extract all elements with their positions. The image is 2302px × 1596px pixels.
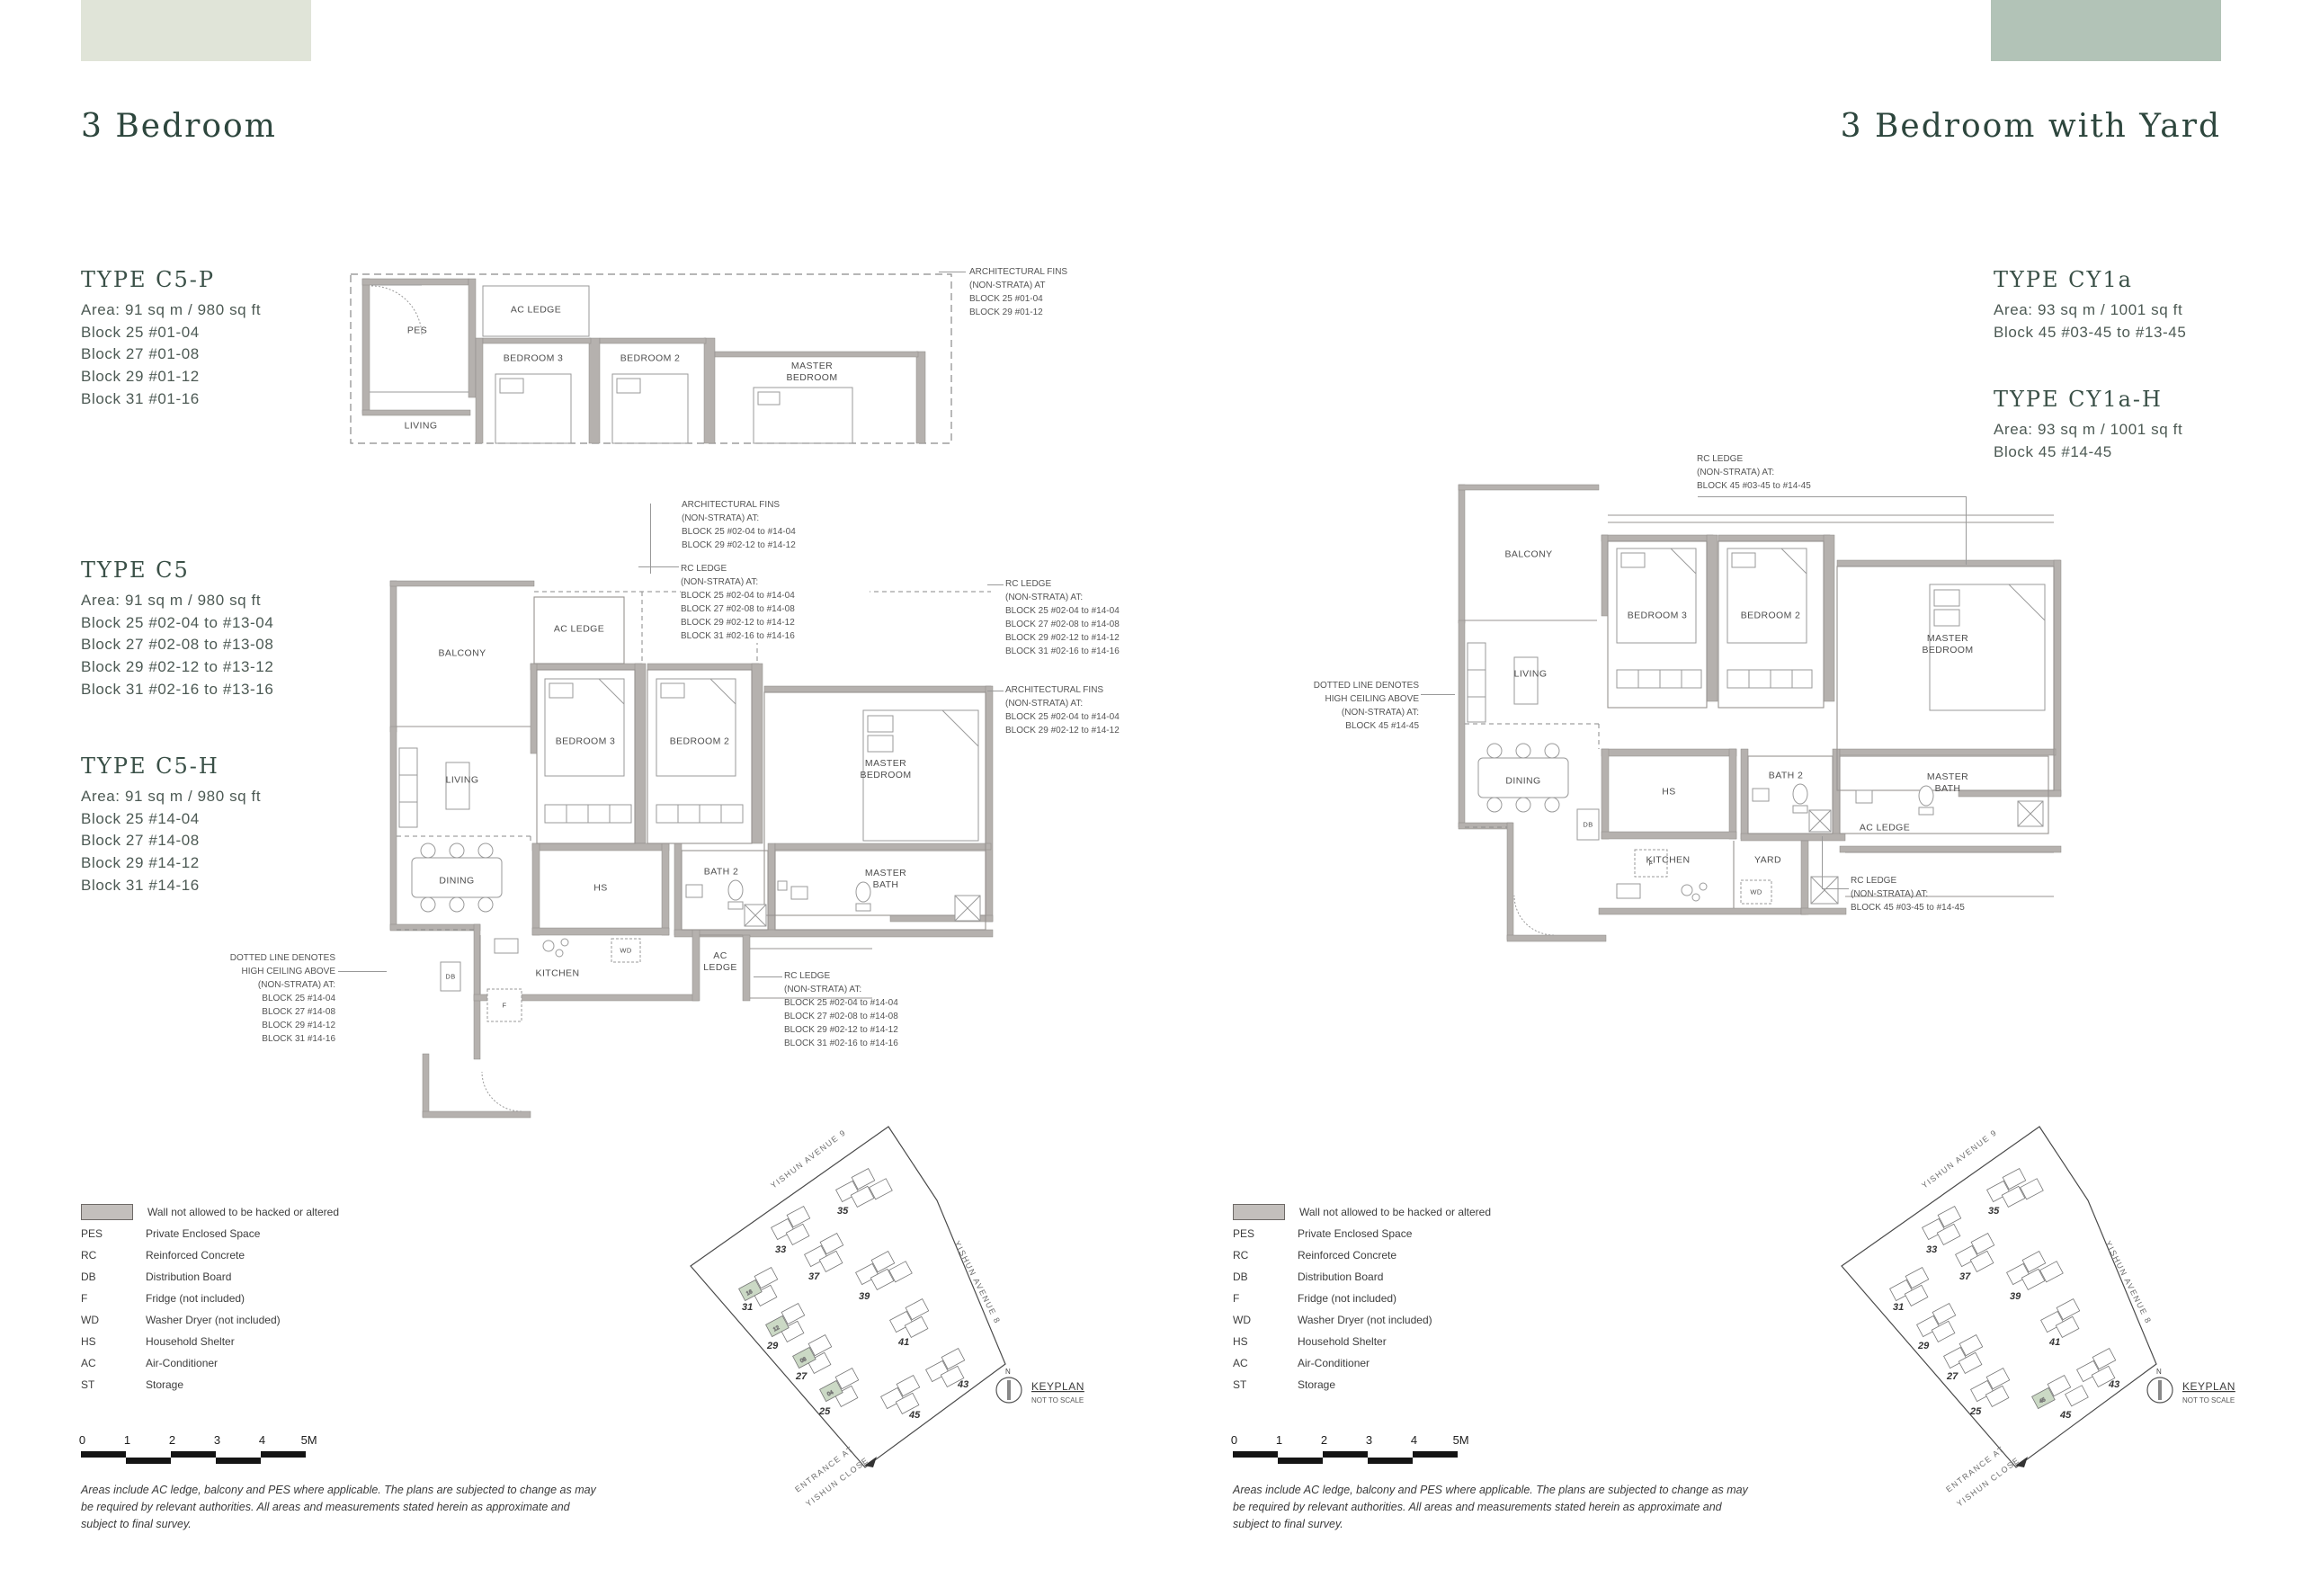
legend-label: Fridge (not included)	[1298, 1292, 1396, 1305]
type-block-cy1ah: TYPE CY1a-H Area: 93 sq m / 1001 sq ft B…	[1994, 387, 2182, 463]
room-label-living: LIVING	[1514, 668, 1548, 680]
building-clusters: 45	[1888, 1164, 2123, 1421]
building-clusters: 16 12 08 04	[737, 1164, 972, 1419]
note-fins-right-c5: ARCHITECTURAL FINS (NON-STRATA) AT: BLOC…	[1005, 683, 1185, 737]
block-label: 39	[859, 1291, 870, 1302]
legend-label: Air-Conditioner	[1298, 1357, 1370, 1369]
block-label: 45	[908, 1410, 921, 1421]
block-label: 39	[2010, 1291, 2021, 1302]
room-label-f: F	[503, 1001, 507, 1009]
legend-abbr: DB	[1233, 1271, 1298, 1283]
legend-row: PESPrivate Enclosed Space	[1233, 1223, 1736, 1244]
keyplan-subtitle: NOT TO SCALE	[1031, 1396, 1084, 1404]
entrance-label: ENTRANCE AT YISHUN CLOSE	[1944, 1444, 2028, 1508]
room-label-dining: DINING	[439, 875, 474, 887]
legend-abbr: WD	[81, 1314, 146, 1326]
leader-line	[939, 272, 966, 272]
north-indicator: N	[996, 1368, 1022, 1403]
note-rc-ledge-bottom-cy1a: RC LEDGE (NON-STRATA) AT: BLOCK 45 #03-4…	[1851, 874, 2039, 914]
legend-row: HSHousehold Shelter	[81, 1331, 584, 1352]
room-label-yard: YARD	[1754, 854, 1781, 866]
leader-line	[638, 566, 679, 567]
legend-row: WDWasher Dryer (not included)	[1233, 1309, 1736, 1331]
scale-tick: 5M	[301, 1433, 317, 1447]
legend-row-wall: Wall not allowed to be hacked or altered	[81, 1201, 584, 1223]
block-label: 27	[795, 1371, 807, 1382]
scale-segment	[1278, 1458, 1323, 1464]
street-label: YISHUN AVENUE 9	[1920, 1128, 1999, 1190]
scale-segment	[1323, 1451, 1368, 1458]
block-label: 29	[766, 1341, 779, 1351]
legend-row: FFridge (not included)	[1233, 1288, 1736, 1309]
street-label: YISHUN AVENUE 8	[952, 1239, 1002, 1325]
room-label-bath2: BATH 2	[704, 866, 738, 878]
block-labels: 35 33 37 39 31 29 41 27 25 43 45	[742, 1206, 968, 1421]
room-label-f: F	[1649, 859, 1654, 867]
note-high-ceiling-cy1a: DOTTED LINE DENOTES HIGH CEILING ABOVE (…	[1253, 679, 1419, 733]
type-block-line: Block 31 #14-16	[81, 875, 261, 897]
type-block-line: Block 25 #01-04	[81, 322, 261, 344]
scale-segment	[1233, 1451, 1278, 1458]
legend-abbr: F	[81, 1292, 146, 1305]
room-label-bedroom2: BEDROOM 2	[1741, 610, 1801, 621]
legend-abbr: HS	[81, 1335, 146, 1348]
block-label: 43	[2108, 1379, 2119, 1390]
block-label: 35	[837, 1206, 849, 1217]
legend-row: ACAir-Conditioner	[1233, 1352, 1736, 1374]
note-rc-ledge-top-cy1a: RC LEDGE (NON-STRATA) AT: BLOCK 45 #03-4…	[1697, 452, 1895, 493]
scale-tick: 0	[1231, 1433, 1237, 1447]
page-title-left: 3 Bedroom	[81, 108, 277, 145]
wall-swatch	[1233, 1204, 1285, 1220]
note-rc-ledge-top-c5: RC LEDGE (NON-STRATA) AT: BLOCK 25 #02-0…	[681, 562, 870, 643]
leader-line	[987, 691, 1004, 691]
block-label: 25	[1969, 1406, 1982, 1417]
leader-line	[1421, 694, 1455, 695]
type-block-line: Block 25 #14-04	[81, 808, 261, 831]
type-block-c5p: TYPE C5-P Area: 91 sq m / 980 sq ft Bloc…	[81, 267, 261, 410]
keyplan-right: YISHUN AVENUE 9 YISHUN AVENUE 8 45 35 33…	[1839, 1115, 2262, 1524]
legend-row: PESPrivate Enclosed Space	[81, 1223, 584, 1244]
block-label: 27	[1946, 1371, 1958, 1382]
room-label-ac-ledge-top: AC LEDGE	[554, 623, 604, 635]
entrance-label: ENTRANCE AT YISHUN CLOSE	[793, 1444, 877, 1508]
legend-abbr: WD	[1233, 1314, 1298, 1326]
room-label-master-bedroom: MASTER BEDROOM	[786, 361, 837, 384]
type-area: Area: 93 sq m / 1001 sq ft	[1994, 299, 2186, 322]
legend-label: Private Enclosed Space	[1298, 1227, 1412, 1240]
floorplan-cy1a-drawing	[1455, 454, 2075, 1003]
legend-row: ACAir-Conditioner	[81, 1352, 584, 1374]
legend-label: Storage	[146, 1378, 183, 1391]
legend-row: FFridge (not included)	[81, 1288, 584, 1309]
type-block-line: Block 29 #14-12	[81, 852, 261, 875]
legend-label: Distribution Board	[1298, 1271, 1383, 1283]
legend-row-wall: Wall not allowed to be hacked or altered	[1233, 1201, 1736, 1223]
north-label: N	[2156, 1368, 2162, 1376]
type-name: TYPE C5	[81, 557, 273, 583]
type-block-line: Block 27 #14-08	[81, 830, 261, 852]
room-label-hs: HS	[593, 882, 607, 894]
block-label: 45	[2059, 1410, 2072, 1421]
leader-line	[338, 971, 387, 972]
type-name: TYPE CY1a-H	[1994, 387, 2182, 412]
scale-tick: 3	[214, 1433, 220, 1447]
legend-row: STStorage	[81, 1374, 584, 1395]
leader-line	[754, 976, 782, 977]
legend-label: Wall not allowed to be hacked or altered	[1299, 1206, 1491, 1218]
scale-tick: 3	[1366, 1433, 1372, 1447]
scale-segment	[1368, 1458, 1413, 1464]
type-block-c5: TYPE C5 Area: 91 sq m / 980 sq ft Block …	[81, 557, 273, 700]
note-high-ceiling-c5: DOTTED LINE DENOTES HIGH CEILING ABOVE (…	[160, 951, 335, 1046]
block-label: 35	[1988, 1206, 2000, 1217]
type-area: Area: 91 sq m / 980 sq ft	[81, 786, 261, 808]
block-label: 29	[1917, 1341, 1930, 1351]
type-block-line: Block 31 #02-16 to #13-16	[81, 679, 273, 701]
block-label: 41	[2048, 1337, 2060, 1348]
site-boundary	[1842, 1127, 2156, 1467]
disclaimer-left: Areas include AC ledge, balcony and PES …	[81, 1482, 607, 1532]
legend-label: Household Shelter	[1298, 1335, 1387, 1348]
legend-label: Reinforced Concrete	[146, 1249, 245, 1262]
street-label: YISHUN AVENUE 9	[769, 1128, 848, 1190]
room-label-balcony: BALCONY	[439, 647, 486, 659]
room-label-kitchen: KITCHEN	[536, 967, 580, 979]
site-boundary	[691, 1127, 1005, 1467]
type-block-c5h: TYPE C5-H Area: 91 sq m / 980 sq ft Bloc…	[81, 753, 261, 896]
legend-row: DBDistribution Board	[1233, 1266, 1736, 1288]
type-block-line: Block 25 #02-04 to #13-04	[81, 612, 273, 635]
note-rc-ledge-right-c5: RC LEDGE (NON-STRATA) AT: BLOCK 25 #02-0…	[1005, 577, 1185, 658]
type-area: Area: 91 sq m / 980 sq ft	[81, 299, 261, 322]
block-label: 33	[1926, 1244, 1937, 1255]
floorplan-cy1a: BALCONY BEDROOM 3 BEDROOM 2 MASTER BEDRO…	[1455, 454, 2075, 1003]
keyplan-subtitle: NOT TO SCALE	[2182, 1396, 2235, 1404]
legend-abbr: AC	[1233, 1357, 1298, 1369]
legend-abbr: HS	[1233, 1335, 1298, 1348]
leader-line	[1966, 496, 1967, 565]
deco-rect-right	[1991, 0, 2221, 61]
leader-line	[1822, 888, 1849, 889]
scale-tick: 1	[1276, 1433, 1282, 1447]
type-block-line: Block 27 #02-08 to #13-08	[81, 634, 273, 656]
legend-label: Storage	[1298, 1378, 1335, 1391]
legend-label: Wall not allowed to be hacked or altered	[147, 1206, 339, 1218]
type-block-line: Block 27 #01-08	[81, 343, 261, 366]
room-label-bedroom2: BEDROOM 2	[670, 736, 730, 747]
scale-tick: 5M	[1453, 1433, 1469, 1447]
room-label-master-bedroom: MASTER BEDROOM	[860, 758, 911, 781]
room-label-pes: PES	[407, 325, 427, 336]
legend-label: Distribution Board	[146, 1271, 231, 1283]
floorplan-c5p: PES AC LEDGE LIVING BEDROOM 3 BEDROOM 2 …	[344, 266, 965, 446]
note-fins-top-c5: ARCHITECTURAL FINS (NON-STRATA) AT: BLOC…	[682, 498, 870, 552]
legend-row: WDWasher Dryer (not included)	[81, 1309, 584, 1331]
room-label-bedroom3: BEDROOM 3	[504, 352, 564, 364]
type-name: TYPE CY1a	[1994, 267, 2186, 292]
scale-tick: 2	[169, 1433, 175, 1447]
type-name: TYPE C5-H	[81, 753, 261, 779]
room-label-wd: WD	[1750, 887, 1762, 896]
north-label: N	[1005, 1368, 1011, 1376]
note-rc-ledge-bottom-c5: RC LEDGE (NON-STRATA) AT: BLOCK 25 #02-0…	[784, 969, 964, 1050]
north-indicator: N	[2147, 1368, 2173, 1403]
room-label-balcony: BALCONY	[1505, 548, 1553, 560]
keyplan-title: KEYPLAN	[1031, 1380, 1084, 1393]
room-label-ac-ledge: AC LEDGE	[511, 304, 561, 316]
street-label: YISHUN AVENUE 8	[2103, 1239, 2153, 1325]
legend-abbr: PES	[1233, 1227, 1298, 1240]
wall-swatch	[81, 1204, 133, 1220]
legend-label: Household Shelter	[146, 1335, 235, 1348]
type-name: TYPE C5-P	[81, 267, 261, 292]
legend-label: Reinforced Concrete	[1298, 1249, 1396, 1262]
room-label-living: LIVING	[446, 774, 479, 786]
room-label-db: DB	[1583, 820, 1593, 828]
disclaimer-right: Areas include AC ledge, balcony and PES …	[1233, 1482, 1759, 1532]
scale-tick: 2	[1321, 1433, 1327, 1447]
block-label: 25	[818, 1406, 831, 1417]
legend-abbr: ST	[81, 1378, 146, 1391]
type-area: Area: 93 sq m / 1001 sq ft	[1994, 419, 2182, 441]
room-label-bath2: BATH 2	[1769, 770, 1803, 781]
legend-abbr: RC	[81, 1249, 146, 1262]
block-label: 37	[808, 1271, 820, 1282]
scale-tick: 1	[124, 1433, 130, 1447]
room-label-bedroom2: BEDROOM 2	[620, 352, 681, 364]
scale-segment	[81, 1451, 126, 1458]
legend-abbr: AC	[81, 1357, 146, 1369]
scale-tick: 4	[259, 1433, 265, 1447]
legend-label: Air-Conditioner	[146, 1357, 218, 1369]
block-label: 41	[897, 1337, 909, 1348]
legend-row: RCReinforced Concrete	[81, 1244, 584, 1266]
legend-right: Wall not allowed to be hacked or altered…	[1233, 1201, 1736, 1395]
deco-rect-left	[81, 0, 311, 61]
scale-segment	[261, 1451, 306, 1458]
legend-abbr: DB	[81, 1271, 146, 1283]
block-label: 37	[1959, 1271, 1971, 1282]
type-block-cy1a: TYPE CY1a Area: 93 sq m / 1001 sq ft Blo…	[1994, 267, 2186, 343]
legend-row: STStorage	[1233, 1374, 1736, 1395]
legend-abbr: ST	[1233, 1378, 1298, 1391]
page-title-right: 3 Bedroom with Yard	[1709, 108, 2221, 145]
block-label: 31	[1893, 1302, 1904, 1313]
room-label-ac-ledge-bottom: AC LEDGE	[703, 950, 737, 974]
room-label-master-bath: MASTER BATH	[1927, 771, 1968, 795]
fixtures	[370, 285, 852, 443]
room-label-living: LIVING	[405, 420, 438, 432]
type-area: Area: 91 sq m / 980 sq ft	[81, 590, 273, 612]
legend-abbr: F	[1233, 1292, 1298, 1305]
legend-label: Fridge (not included)	[146, 1292, 245, 1305]
room-label-ac-ledge: AC LEDGE	[1860, 822, 1910, 834]
room-label-bedroom3: BEDROOM 3	[1628, 610, 1688, 621]
leader-line	[987, 584, 1004, 585]
keyplan-title: KEYPLAN	[2182, 1380, 2235, 1393]
legend-abbr: RC	[1233, 1249, 1298, 1262]
leader-line	[650, 504, 651, 574]
legend-label: Washer Dryer (not included)	[1298, 1314, 1432, 1326]
block-label: 31	[742, 1302, 753, 1313]
leader-line	[1698, 496, 1966, 497]
block-label: 33	[775, 1244, 786, 1255]
legend-row: RCReinforced Concrete	[1233, 1244, 1736, 1266]
block-label: 43	[957, 1379, 968, 1390]
legend-label: Private Enclosed Space	[146, 1227, 260, 1240]
room-label-db: DB	[445, 972, 455, 980]
type-block-line: Block 45 #03-45 to #13-45	[1994, 322, 2186, 344]
type-block-line: Block 29 #01-12	[81, 366, 261, 388]
leader-line	[1822, 836, 1823, 888]
scale-segment	[1413, 1451, 1458, 1458]
legend-label: Washer Dryer (not included)	[146, 1314, 281, 1326]
room-label-master-bedroom: MASTER BEDROOM	[1922, 633, 1973, 656]
room-label-master-bath: MASTER BATH	[865, 868, 906, 891]
legend-row: DBDistribution Board	[81, 1266, 584, 1288]
scale-segment	[216, 1458, 261, 1464]
scale-segment	[171, 1451, 216, 1458]
scale-segment	[126, 1458, 171, 1464]
type-block-line: Block 31 #01-16	[81, 388, 261, 411]
room-label-bedroom3: BEDROOM 3	[556, 736, 616, 747]
scale-tick: 4	[1411, 1433, 1417, 1447]
legend-row: HSHousehold Shelter	[1233, 1331, 1736, 1352]
scale-tick: 0	[79, 1433, 85, 1447]
type-block-line: Block 29 #02-12 to #13-12	[81, 656, 273, 679]
block-labels: 35 33 37 39 31 29 41 27 25 43 45	[1893, 1206, 2119, 1421]
legend-left: Wall not allowed to be hacked or altered…	[81, 1201, 584, 1395]
room-label-hs: HS	[1662, 786, 1675, 798]
room-label-wd: WD	[620, 946, 631, 954]
scale-bar-right: 0 1 2 3 4 5M	[1233, 1433, 1467, 1471]
room-label-dining: DINING	[1505, 775, 1540, 787]
note-fins-c5p: ARCHITECTURAL FINS (NON-STRATA) AT BLOCK…	[969, 265, 1140, 319]
keyplan-left: YISHUN AVENUE 9 YISHUN AVENUE 8 16 12 08…	[688, 1115, 1111, 1524]
legend-abbr: PES	[81, 1227, 146, 1240]
scale-bar-left: 0 1 2 3 4 5M	[81, 1433, 315, 1471]
